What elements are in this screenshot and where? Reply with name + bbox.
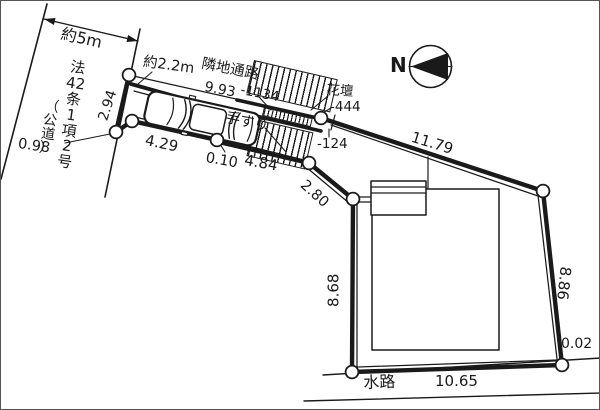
dim-west-side: 8.68: [325, 274, 342, 307]
elevation-mid-label: -444: [330, 100, 361, 115]
dimension-arrow-left: [44, 18, 56, 25]
compass-n-label: N: [390, 54, 407, 76]
building-annex: [371, 181, 426, 215]
dimension-arrow-right: [127, 35, 139, 42]
north-arrow-icon: [409, 46, 452, 88]
flower-bed-label: 花壇: [326, 83, 354, 100]
plan-linework: [1, 1, 600, 410]
leader-flower-bed: [311, 96, 328, 110]
waterway-label: 水路: [363, 373, 396, 392]
leader-handrail: [265, 128, 286, 152]
dim-east-side: 8.86: [554, 266, 574, 301]
waterway-line-lower: [304, 393, 600, 401]
dim-south-side: 10.65: [435, 373, 478, 390]
site-plan: 約5m 法 42 条 1 項 2 号 （ 公 道 ） 約2.2m 隣地通路 9.…: [0, 0, 600, 410]
elevation-low-label: -124: [317, 137, 348, 152]
dim-southeast-corner: 0.02: [561, 337, 592, 352]
